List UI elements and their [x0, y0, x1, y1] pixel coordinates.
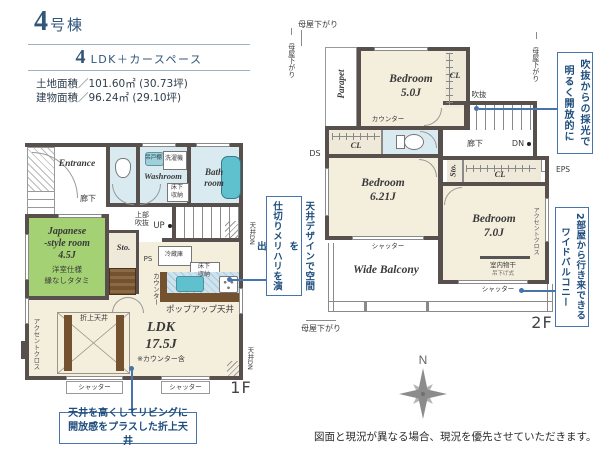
callout-ceiling-design: 天井デザインで空間を 仕切りメリハリを演出 [266, 196, 302, 296]
wall-segment [443, 101, 537, 105]
balcony-rail [552, 284, 553, 312]
wall-segment [106, 147, 110, 207]
compass-center [421, 392, 425, 396]
page-title: 4 号棟 [34, 6, 84, 38]
balcony-rail [547, 284, 548, 312]
wall-segment [21, 341, 29, 359]
window [161, 376, 210, 380]
balcony-rail [328, 311, 552, 312]
f2-shutter1-label: シャッター [370, 242, 406, 251]
window [352, 236, 424, 240]
f1-cabinet [109, 268, 136, 295]
f2-moya-top-label: 母屋下がり [296, 20, 340, 30]
closet-rod-ticks [332, 133, 380, 140]
f1-ldk-note: ※カウンター含 [133, 355, 189, 364]
kitchen-sink-icon [176, 276, 204, 292]
f2-cl3-label: CL [490, 169, 510, 180]
wall-segment [325, 126, 470, 130]
f2-bedroom2-label: Bedroom 6.21J [338, 176, 428, 206]
f1-shutter1-box: シャッター [66, 381, 123, 394]
f1-entrance-label: Entrance [52, 159, 102, 171]
f1-floor-label: 1F [226, 378, 256, 398]
window [545, 198, 549, 242]
f2-ds-label: DS [306, 149, 324, 159]
dimension-line [301, 30, 302, 46]
f1-counter-label: カウンター [150, 268, 159, 310]
header-rule-2 [28, 70, 250, 71]
window [66, 376, 123, 380]
plan-suffix: LDK＋カースペース [91, 53, 203, 66]
callout-connector [131, 368, 133, 412]
wall-segment [438, 126, 443, 284]
balcony-rail [328, 301, 552, 302]
callout-anchor-dot [474, 106, 479, 111]
wall-segment [357, 51, 361, 126]
callout-anchor-dot [227, 277, 232, 282]
f2-void-label: 吹抜 [468, 89, 490, 99]
wall-segment [25, 296, 109, 300]
window [25, 298, 29, 324]
wall-segment [162, 238, 243, 242]
f1-stairs-void-hatch [225, 221, 239, 238]
f1-hallway-label: 廊下 [78, 194, 98, 204]
window [239, 288, 243, 314]
wall-segment [381, 130, 383, 154]
f1-ldk-label: LDK 17.5J [133, 320, 189, 354]
f2-parapet-label: Parapet [335, 61, 347, 107]
wall-segment [105, 230, 139, 233]
f2-accent-cloth-label: アクセントクロス [531, 202, 540, 260]
toilet-icon [404, 134, 424, 150]
callout-anchor-dot [129, 366, 134, 371]
f1-ceiling-dn-corner-label: 天井DN [244, 340, 254, 376]
building-number: 4 [34, 6, 48, 38]
balcony-post [364, 301, 367, 311]
building-area: 建物面積／96.24㎡ (29.10坪) [36, 90, 181, 105]
f1-folded-ceiling-label: 折上天井 [72, 314, 116, 323]
folded-ceiling-beam [64, 315, 72, 371]
toilet-icon [115, 158, 131, 178]
indoor-drying-rod [480, 256, 530, 259]
toilet-tank [396, 135, 405, 149]
f1-ceiling-dn-hatch [227, 361, 239, 376]
wall-segment [533, 101, 537, 160]
wall-segment [464, 105, 468, 130]
compass-north-label: N [419, 353, 428, 367]
land-area: 土地面積／101.60㎡ (30.73坪) [36, 76, 188, 91]
f1-japanese-room-label: Japanese -style room 4.5J [30, 225, 104, 263]
wall-segment [443, 182, 545, 186]
f2-bedroom1-label: Bedroom 5.0J [366, 72, 456, 102]
window [196, 143, 230, 147]
f2-indoor-drying-sub: 吊下げ式 [490, 270, 516, 278]
wall-segment [325, 154, 443, 158]
window [325, 168, 329, 216]
f1-hanging-cupboard-label: 吊戸棚 [143, 154, 164, 162]
folded-ceiling-beam [116, 315, 124, 371]
f2-counter-label: カウンター [370, 115, 406, 124]
plan-type: 4 LDK＋カースペース [28, 46, 250, 69]
compass-rose: N [398, 350, 448, 422]
f1-up-label: UP [150, 221, 168, 231]
callout-anchor-dot [519, 288, 524, 293]
window [25, 234, 29, 280]
f2-moya-bottom-label: 母屋下がり [298, 324, 344, 334]
dn-marker-dot [527, 142, 531, 146]
up-marker-dot [168, 224, 172, 228]
f2-floor-label: 2F [526, 312, 558, 334]
f1-popup-ceiling-label: ポップアップ天井 [163, 305, 237, 315]
f2-storage-label: Sto. [448, 159, 459, 183]
f2-indoor-drying-label: 室内物干 [486, 261, 520, 270]
wall-segment [25, 376, 243, 380]
f1-bathroom-label: Bath room [192, 167, 236, 189]
disclaimer-text: 図面と現況が異なる場合、現況を優先させていただきます。 [314, 429, 598, 444]
header-rule-1 [28, 44, 250, 45]
window [458, 280, 528, 284]
f2-dn-label: DN [508, 139, 528, 149]
building-suffix: 号棟 [50, 14, 84, 35]
window [374, 47, 428, 51]
f1-japanese-room-note1: 洋室仕様 [40, 265, 94, 274]
dimension-line [536, 32, 537, 39]
callout-balcony: 2部屋から行き来できる ワイドバルコニー [555, 207, 589, 327]
f1-washroom-label: Washroom [138, 171, 188, 182]
dimension-line [306, 320, 336, 321]
f2-moya-left-label: 母屋下がり [287, 36, 296, 84]
f1-japanese-room-note2: 縁なしタタミ [36, 276, 98, 285]
sliding-door [58, 214, 102, 218]
f1-ps-label: PS [140, 255, 156, 264]
f2-balcony-label: Wide Balcony [342, 263, 430, 279]
f2-hallway-label: 廊下 [464, 139, 486, 149]
f2-moya-right-label: 母屋下がり [531, 40, 540, 88]
f2-cl1-label: CL [446, 70, 464, 81]
dimension-line [291, 28, 292, 35]
callout-folded-ceiling: 天井を高くしてリビングに 開放感をプラスした折上天井 [59, 412, 197, 444]
f2-cl2-label: CL [346, 140, 366, 151]
callout-connector [523, 290, 555, 292]
floorplan-page: 4 号棟 4 LDK＋カースペース 土地面積／101.60㎡ (30.73坪) … [0, 0, 600, 449]
f1-washer-label: 洗濯機 [164, 155, 184, 163]
f2-shutter2-label: シャッター [480, 285, 516, 294]
f1-underfloor-kitchen-label: 床下 収納 [192, 263, 216, 278]
window [142, 143, 176, 147]
callout-connector [479, 108, 557, 110]
wall-segment [136, 230, 139, 294]
f1-fridge-label: 冷蔵庫 [160, 251, 188, 259]
callout-daylight: 吹抜からの採光で 明るく開放的に [557, 52, 593, 154]
f1-shutter2-box: シャッター [161, 381, 210, 394]
f2-eps-label: EPS [551, 164, 575, 174]
f2-bedroom3-label: Bedroom 7.0J [449, 212, 539, 242]
f1-underfloor-storage-label: 床下 収納 [168, 184, 186, 199]
plan-number: 4 [75, 46, 85, 68]
balcony-post [426, 301, 429, 311]
f1-accent-cloth-label: アクセントクロス [30, 314, 40, 374]
f1-storage-label: Sto. [110, 242, 137, 253]
wall-segment [462, 160, 464, 182]
